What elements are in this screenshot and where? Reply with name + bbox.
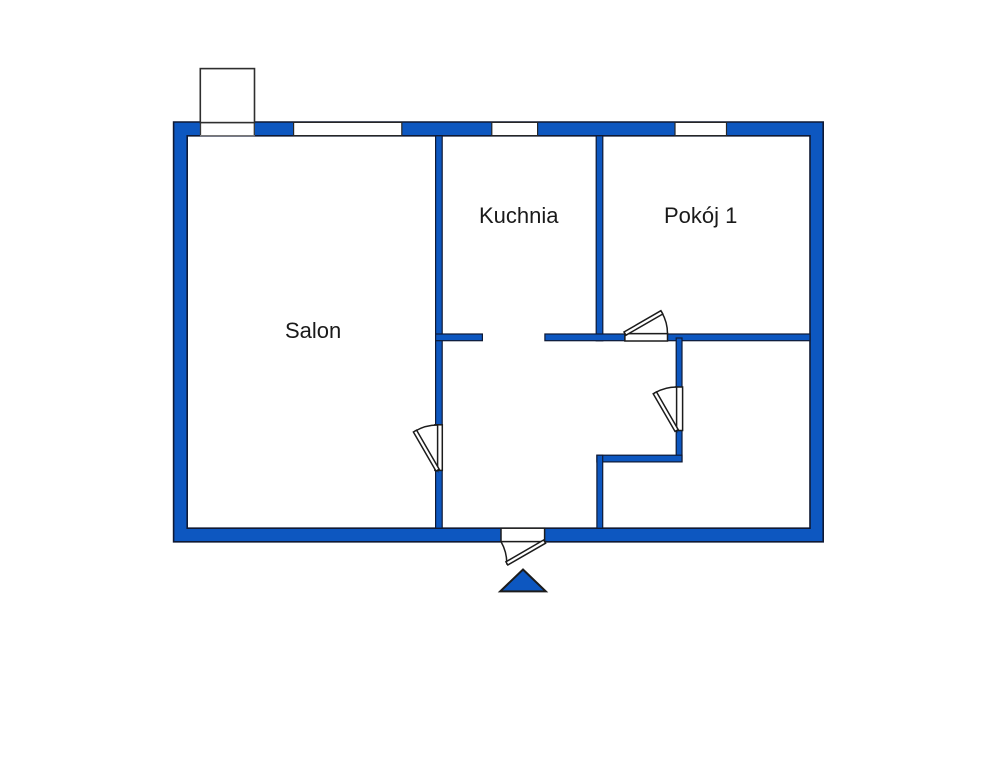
svg-text:Pokój 1: Pokój 1 xyxy=(664,203,737,228)
svg-text:Salon: Salon xyxy=(285,318,341,343)
svg-text:Kuchnia: Kuchnia xyxy=(479,203,559,228)
